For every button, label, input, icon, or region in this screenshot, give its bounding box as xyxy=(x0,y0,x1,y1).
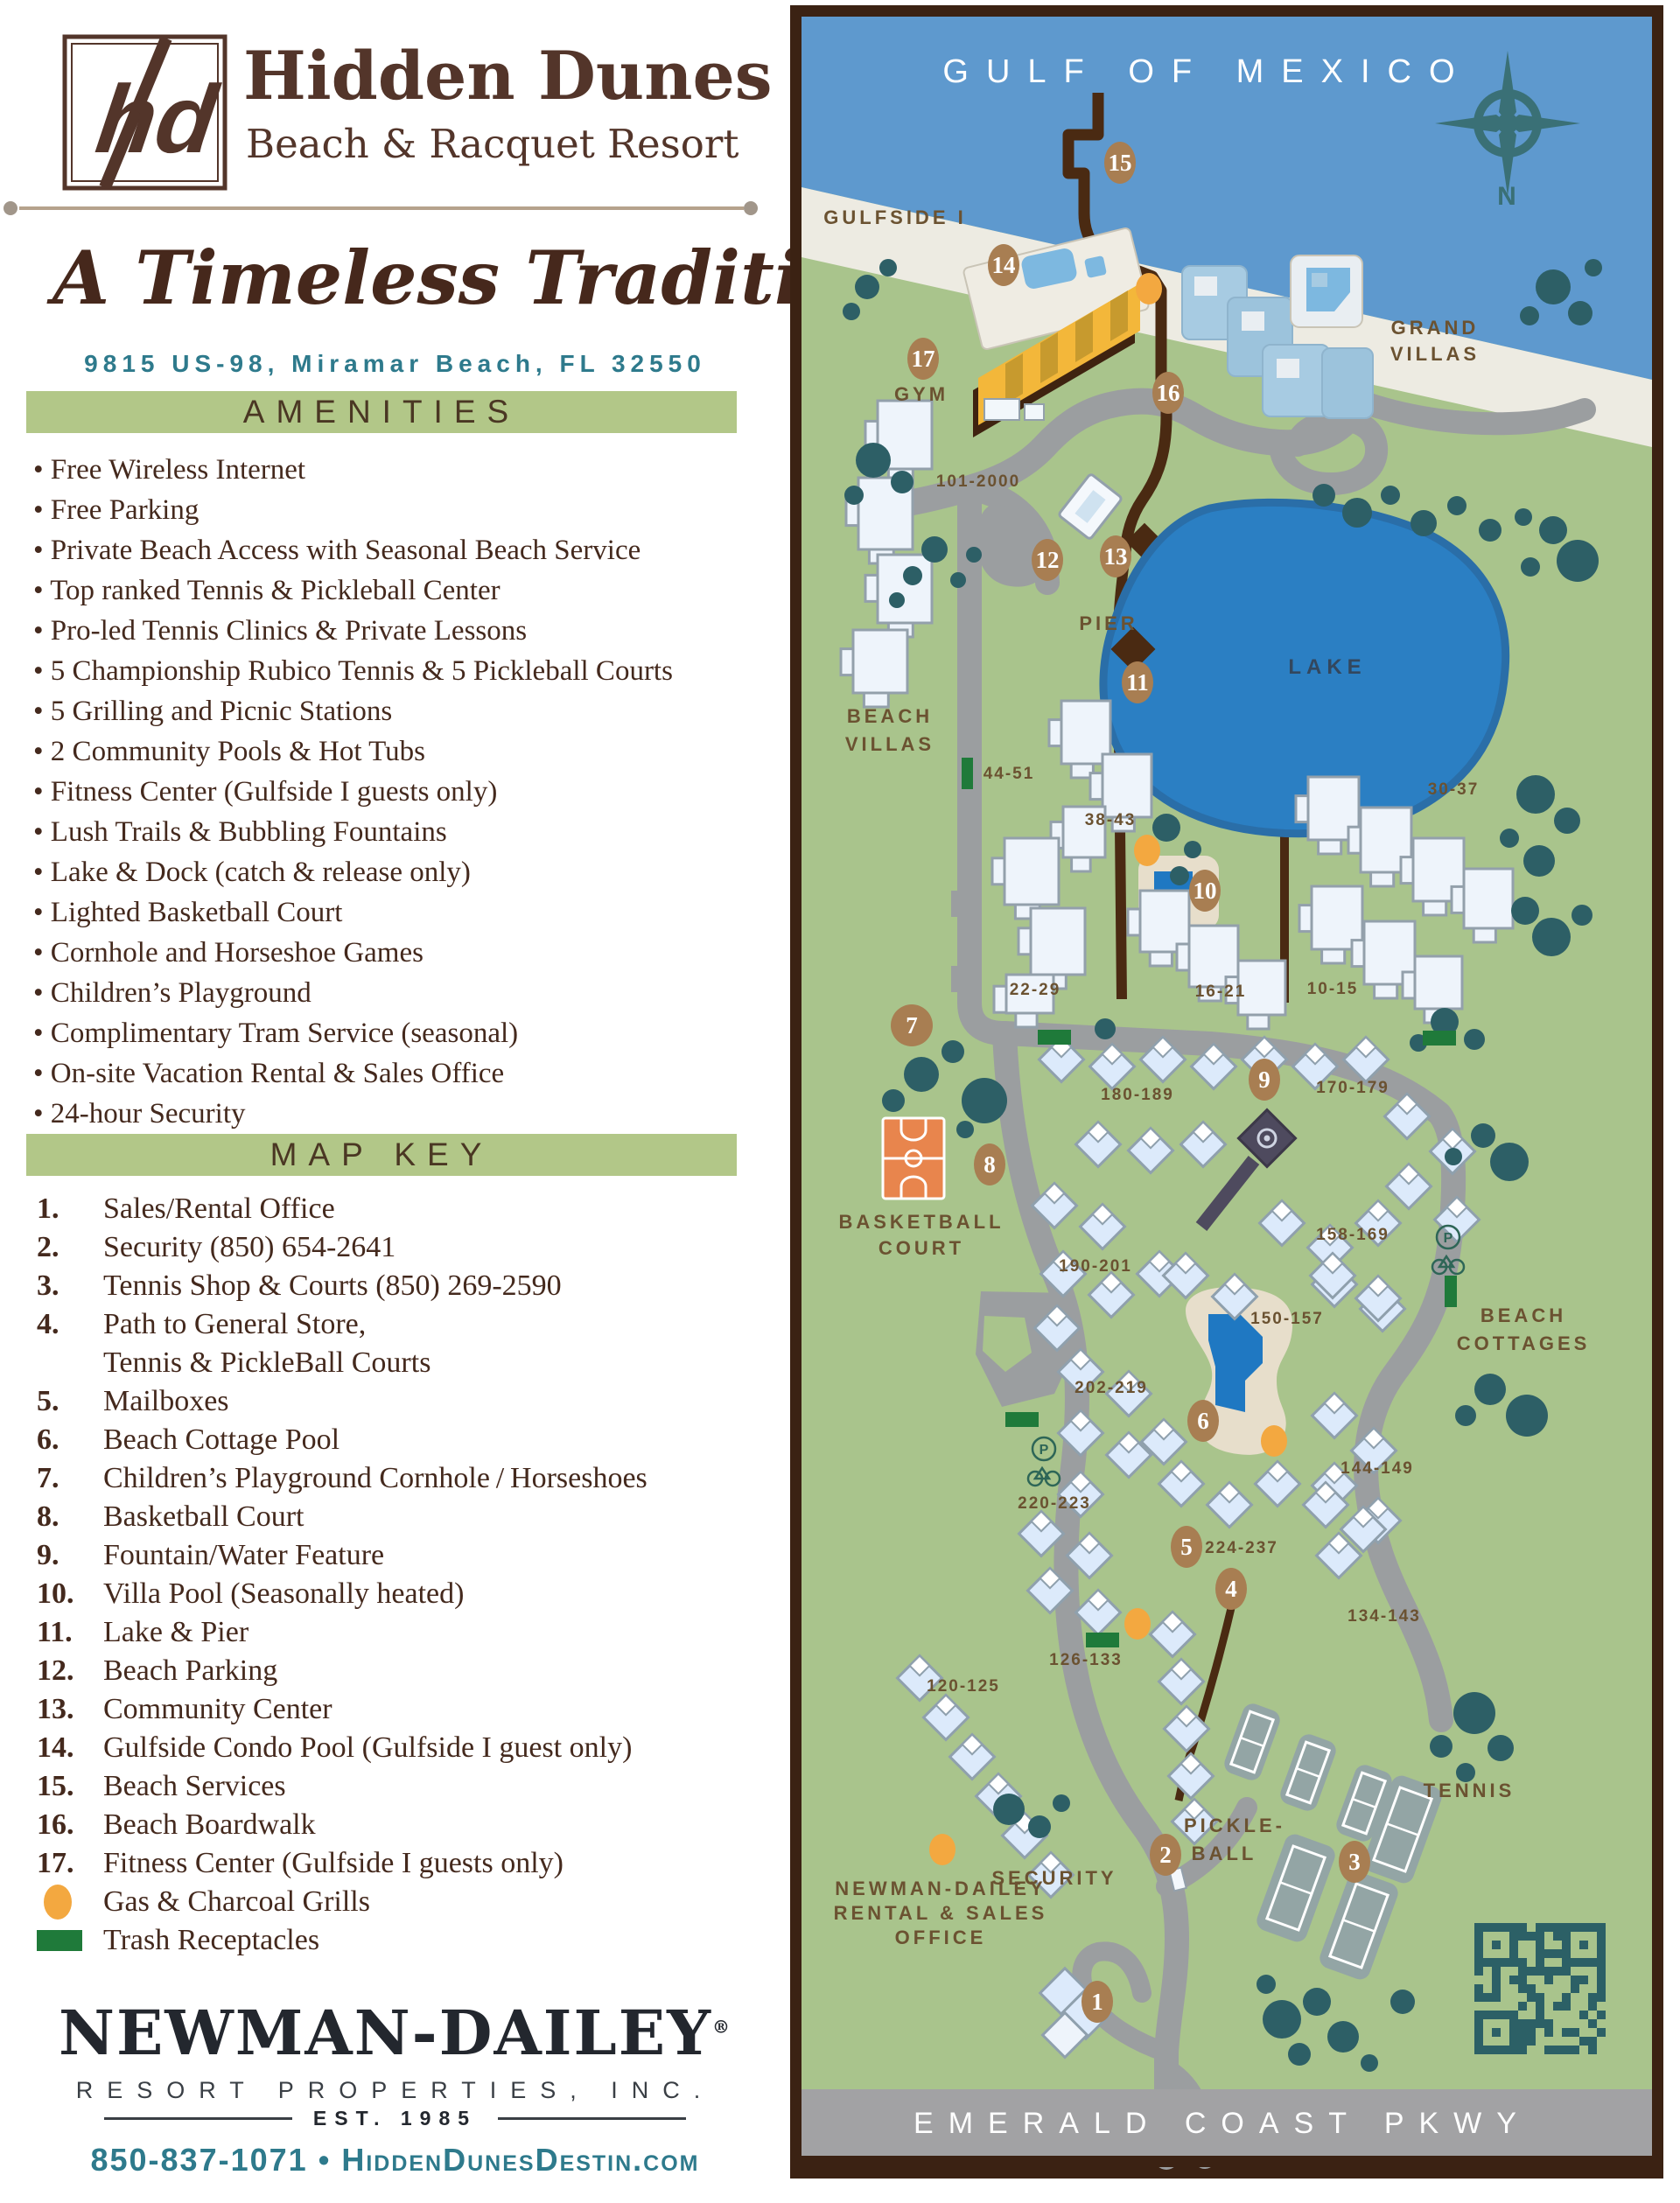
map-key-item: 6.Beach Cottage Pool xyxy=(37,1421,776,1459)
map-key-header: MAP KEY xyxy=(26,1134,737,1176)
brand-name: Hidden Dunes xyxy=(243,37,773,115)
map-key-item: 7.Children’s Playground Cornhole / Horse… xyxy=(37,1459,776,1498)
contact-bullet: • xyxy=(318,2142,332,2178)
map-key-item: 12.Beach Parking xyxy=(37,1652,776,1690)
unit-range-label: 224-237 xyxy=(1205,1539,1278,1557)
map-key-item: 8.Basketball Court xyxy=(37,1498,776,1536)
map-marker-3: 3 xyxy=(1339,1841,1370,1883)
amenities-header: AMENITIES xyxy=(26,391,737,433)
phone-number: 850-837-1071 xyxy=(90,2142,307,2178)
svg-text:13: 13 xyxy=(1104,543,1128,570)
amenity-item: • Top ranked Tennis & Pickleball Center xyxy=(33,570,773,611)
amenity-item: • Private Beach Access with Seasonal Bea… xyxy=(33,530,773,570)
unit-range-label: 38-43 xyxy=(1085,811,1137,829)
amenity-item: • 5 Championship Rubico Tennis & 5 Pickl… xyxy=(33,651,773,691)
map-label: NEWMAN-DAILEY xyxy=(835,1878,1046,1899)
est-text: EST. 1985 xyxy=(313,2107,477,2130)
map-marker-4: 4 xyxy=(1215,1568,1247,1610)
map-label: BEACH xyxy=(1480,1304,1566,1326)
map-label: EMERALD COAST PKWY xyxy=(913,2107,1531,2140)
unit-range-label: 202-219 xyxy=(1074,1379,1148,1397)
svg-text:16: 16 xyxy=(1157,380,1180,406)
est-line-right xyxy=(498,2117,686,2120)
svg-text:15: 15 xyxy=(1109,150,1132,176)
company-est: EST. 1985 xyxy=(0,2107,790,2130)
amenity-item: • Children’s Playground xyxy=(33,973,773,1013)
map-label: PICKLE- xyxy=(1184,1815,1285,1836)
amenity-item: • Complimentary Tram Service (seasonal) xyxy=(33,1013,773,1053)
basketball-court xyxy=(883,1118,944,1199)
company-subtitle: RESORT PROPERTIES, INC. xyxy=(0,2077,790,2104)
map-marker-16: 16 xyxy=(1152,372,1184,414)
unit-range-label: 30-37 xyxy=(1428,780,1480,799)
unit-range-label: 44-51 xyxy=(983,765,1035,783)
svg-text:3: 3 xyxy=(1348,1849,1361,1875)
brand-subtitle: Beach & Racquet Resort xyxy=(246,121,738,167)
map-key-item: 2.Security (850) 654-2641 xyxy=(37,1228,776,1267)
map-marker-13: 13 xyxy=(1100,535,1131,577)
map-marker-11: 11 xyxy=(1122,661,1153,703)
map-key-item: 5.Mailboxes xyxy=(37,1382,776,1421)
map-label: VILLAS xyxy=(845,733,934,755)
unit-range-label: 16-21 xyxy=(1195,983,1247,1001)
map-label: TENNIS xyxy=(1424,1780,1515,1801)
map-marker-2: 2 xyxy=(1150,1834,1181,1876)
map-key-item: 10.Villa Pool (Seasonally heated) xyxy=(37,1575,776,1613)
svg-text:hd: hd xyxy=(90,66,225,172)
map-marker-7: 7 xyxy=(891,1004,933,1046)
company-logo: NEWMAN-DAILEY® xyxy=(0,1997,790,2069)
amenity-item: • Pro-led Tennis Clinics & Private Lesso… xyxy=(33,611,773,651)
amenity-item: • Lush Trails & Bubbling Fountains xyxy=(33,812,773,852)
map-marker-17: 17 xyxy=(907,338,939,380)
gym-building xyxy=(984,399,1019,420)
svg-text:8: 8 xyxy=(983,1151,996,1178)
amenities-list: • Free Wireless Internet• Free Parking• … xyxy=(33,450,773,1134)
est-line-left xyxy=(104,2117,292,2120)
unit-range-label: 22-29 xyxy=(1010,981,1061,999)
unit-range-label: 150-157 xyxy=(1250,1310,1324,1328)
unit-range-label: 220-223 xyxy=(1018,1494,1091,1513)
map-label: BASKETBALL xyxy=(838,1211,1004,1233)
map-key-item: 13.Community Center xyxy=(37,1690,776,1729)
amenity-item: • Cornhole and Horseshoe Games xyxy=(33,933,773,973)
map-key-item: 11.Lake & Pier xyxy=(37,1613,776,1652)
info-panel: hd Hidden Dunes Beach & Racquet Resort A… xyxy=(0,0,790,2203)
map-label: BALL xyxy=(1192,1843,1257,1864)
map-label: OFFICE xyxy=(895,1927,987,1948)
hidden-dunes-monogram-icon: hd xyxy=(59,31,230,193)
map-key-item: Tennis & PickleBall Courts xyxy=(37,1344,776,1382)
map-key-item: 4.Path to General Store, xyxy=(37,1305,776,1344)
amenity-item: • 5 Grilling and Picnic Stations xyxy=(33,691,773,731)
map-marker-14: 14 xyxy=(988,244,1019,286)
map-key-item: 9.Fountain/Water Feature xyxy=(37,1536,776,1575)
map-key-item: 3.Tennis Shop & Courts (850) 269-2590 xyxy=(37,1267,776,1305)
map-label: LAKE xyxy=(1288,655,1366,679)
map-key-item: 17.Fitness Center (Gulfside I guests onl… xyxy=(37,1844,776,1883)
map-key-legend-item: Trash Receptacles xyxy=(37,1921,776,1960)
svg-text:2: 2 xyxy=(1159,1842,1172,1868)
amenity-item: • On-site Vacation Rental & Sales Office xyxy=(33,1053,773,1094)
map-label: GULFSIDE I xyxy=(823,206,966,228)
unit-range-label: 10-15 xyxy=(1307,980,1359,998)
map-key-item: 16.Beach Boardwalk xyxy=(37,1806,776,1844)
amenity-item: • Fitness Center (Gulfside I guests only… xyxy=(33,772,773,812)
svg-text:4: 4 xyxy=(1225,1576,1237,1602)
amenity-item: • Free Wireless Internet xyxy=(33,450,773,490)
map-marker-15: 15 xyxy=(1104,142,1136,184)
map-marker-6: 6 xyxy=(1187,1400,1219,1442)
map-label: N xyxy=(1497,182,1518,211)
unit-range-label: 126-133 xyxy=(1049,1651,1123,1669)
unit-range-label: 144-149 xyxy=(1340,1459,1414,1478)
svg-text:1: 1 xyxy=(1091,1989,1103,2015)
svg-text:11: 11 xyxy=(1126,669,1149,696)
unit-range-label: 101-2000 xyxy=(936,472,1020,491)
address: 9815 US-98, Miramar Beach, FL 32550 xyxy=(0,350,790,378)
map-label: BEACH xyxy=(847,705,933,727)
map-key-legend-item: Gas & Charcoal Grills xyxy=(37,1883,776,1921)
svg-text:7: 7 xyxy=(906,1012,918,1039)
svg-text:6: 6 xyxy=(1197,1408,1209,1434)
svg-text:12: 12 xyxy=(1036,547,1060,573)
map-key-item: 14.Gulfside Condo Pool (Gulfside I guest… xyxy=(37,1729,776,1767)
map-key-item: 1.Sales/Rental Office xyxy=(37,1190,776,1228)
unit-range-label: 170-179 xyxy=(1316,1079,1389,1097)
unit-range-label: 190-201 xyxy=(1059,1257,1132,1276)
divider-dot-right xyxy=(744,201,758,215)
map-label: COTTAGES xyxy=(1457,1332,1591,1354)
map-key-item: 15.Beach Services xyxy=(37,1767,776,1806)
amenity-item: • 24-hour Security xyxy=(33,1094,773,1134)
map-marker-8: 8 xyxy=(974,1143,1005,1185)
map-label: GYM xyxy=(894,383,948,405)
amenity-item: • Lake & Dock (catch & release only) xyxy=(33,852,773,892)
trash-icon xyxy=(37,1930,82,1951)
grill-icon xyxy=(44,1885,72,1920)
map-label: VILLAS xyxy=(1390,343,1480,365)
svg-text:9: 9 xyxy=(1258,1067,1270,1093)
map-label: PIER xyxy=(1079,612,1137,634)
map-marker-5: 5 xyxy=(1171,1526,1202,1568)
unit-range-label: 158-169 xyxy=(1316,1226,1389,1244)
map-marker-12: 12 xyxy=(1032,539,1063,581)
amenity-item: • Free Parking xyxy=(33,490,773,530)
divider-dot-left xyxy=(3,201,17,215)
qr-code[interactable] xyxy=(1469,1918,1611,2060)
divider-line xyxy=(19,206,744,210)
svg-text:10: 10 xyxy=(1193,878,1217,904)
map-label: RENTAL & SALES xyxy=(834,1902,1048,1924)
svg-text:14: 14 xyxy=(992,252,1016,278)
amenity-item: • Lighted Basketball Court xyxy=(33,892,773,933)
map-marker-10: 10 xyxy=(1189,870,1221,912)
svg-text:P: P xyxy=(1444,1231,1453,1246)
map-label: COURT xyxy=(878,1237,964,1259)
map-label: GRAND xyxy=(1391,317,1480,339)
resort-map: PP GULF OF MEXICOGULFSIDE IGRANDVILLASGY… xyxy=(790,5,1663,2179)
unit-range-label: 180-189 xyxy=(1101,1086,1174,1104)
svg-text:P: P xyxy=(1039,1443,1049,1458)
map-marker-9: 9 xyxy=(1249,1059,1280,1101)
unit-range-label: 134-143 xyxy=(1347,1607,1421,1626)
unit-range-label: 120-125 xyxy=(927,1677,1000,1696)
svg-text:17: 17 xyxy=(912,346,935,372)
map-key-list: 1.Sales/Rental Office2.Security (850) 65… xyxy=(37,1190,776,1960)
amenity-item: • 2 Community Pools & Hot Tubs xyxy=(33,731,773,772)
map-label: GULF OF MEXICO xyxy=(942,53,1472,90)
website-link[interactable]: HiddenDunesDestin.com xyxy=(341,2142,699,2178)
contact-line: 850-837-1071 • HiddenDunesDestin.com xyxy=(0,2142,790,2179)
map-marker-1: 1 xyxy=(1081,1981,1113,2023)
svg-text:5: 5 xyxy=(1180,1534,1193,1560)
